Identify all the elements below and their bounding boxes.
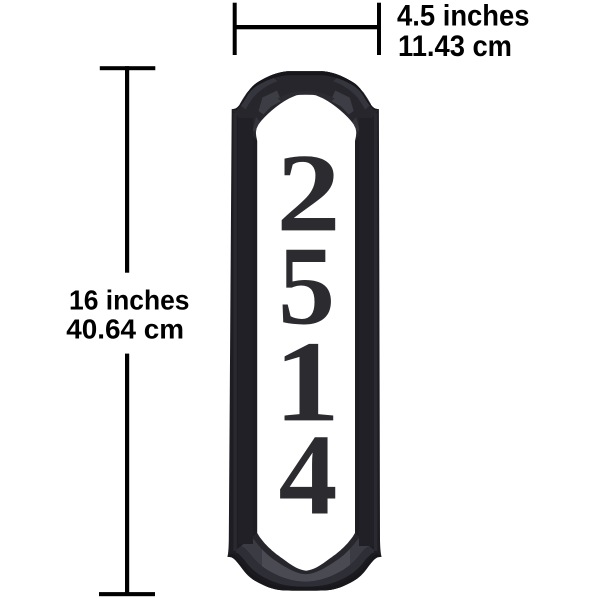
svg-text:40.64 cm: 40.64 cm — [66, 314, 184, 345]
svg-text:4.5 inches: 4.5 inches — [397, 0, 530, 33]
svg-text:11.43 cm: 11.43 cm — [398, 30, 512, 63]
svg-text:4: 4 — [279, 412, 338, 539]
svg-text:16 inches: 16 inches — [69, 285, 190, 316]
